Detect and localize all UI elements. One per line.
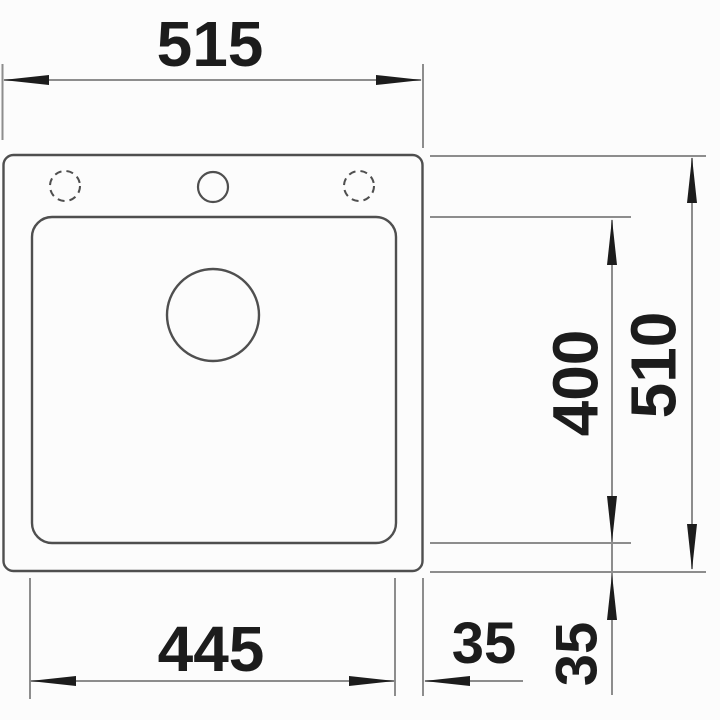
arrow-left-icon [3,75,49,85]
arrow-down-icon [687,524,697,570]
drain-hole [167,269,259,361]
dimension-right-offset: 35 [423,578,523,696]
arrow-down-icon [607,496,617,542]
tap-hole-center [198,172,228,202]
dimension-bowl-width: 445 [30,578,395,699]
dimension-label-right-offset: 35 [452,611,517,676]
arrow-up-icon [607,574,617,620]
dimension-label-bottom-offset: 35 [544,622,609,687]
arrow-up-icon [687,157,697,203]
dimension-label-overall-width: 515 [157,8,264,80]
dimension-label-bowl-depth: 400 [539,330,611,437]
dimension-label-bowl-width: 445 [158,613,265,685]
sink-bowl-outline [32,217,396,543]
sink-outline-group [4,155,423,571]
arrow-right-icon [349,676,395,686]
arrow-right-icon [376,75,422,85]
sink-dimension-drawing: 515 510 400 445 [0,0,720,720]
arrow-left-icon [30,676,76,686]
arrow-up-icon [607,219,617,265]
dimension-bottom-offset: 35 [544,574,617,686]
dimension-overall-width: 515 [3,8,424,148]
optional-tap-hole-left [50,171,80,201]
arrow-left-icon [424,676,470,686]
technical-drawing-canvas: 515 510 400 445 [0,0,720,720]
dimension-label-overall-depth: 510 [617,312,689,419]
optional-tap-hole-right [344,171,374,201]
